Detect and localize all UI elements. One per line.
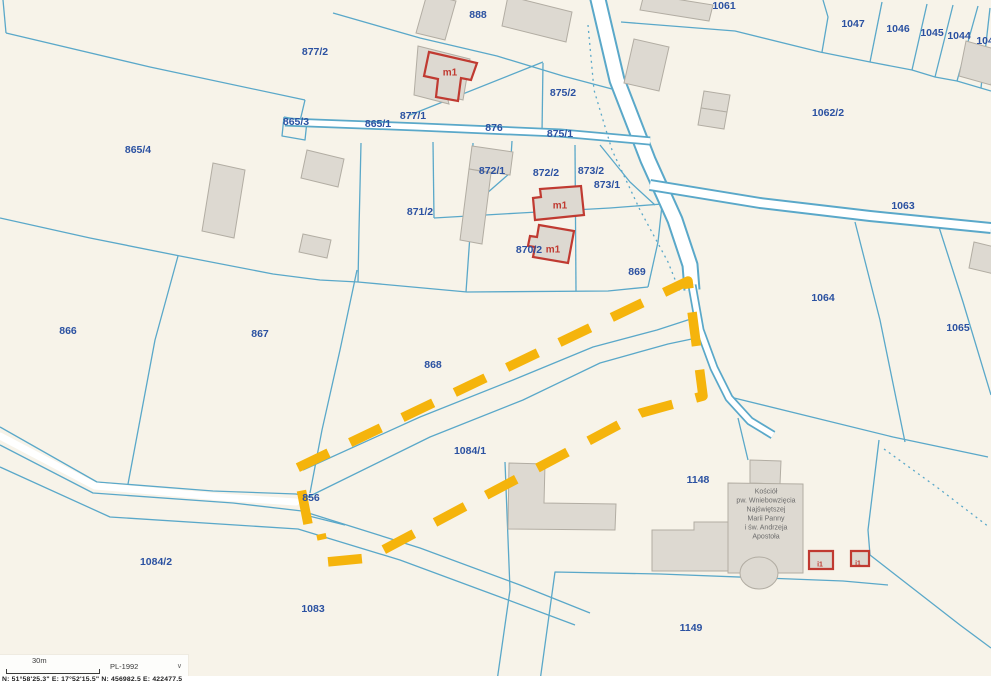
parcel-label: 873/1 xyxy=(594,179,620,191)
parcel-label: 868 xyxy=(424,359,442,371)
church-name-label: Najświętszej xyxy=(747,507,786,514)
parcel-label: 1149 xyxy=(680,622,703,634)
parcel-label: 869 xyxy=(628,266,646,278)
church-name-label: pw. Wniebowzięcia xyxy=(736,498,795,505)
parcel-label: 1064 xyxy=(811,292,835,304)
parcel-label: 1046 xyxy=(886,23,910,35)
parcel-label: 866 xyxy=(59,325,77,337)
parcel-label: 867 xyxy=(251,328,269,340)
parcel-label: 865/1 xyxy=(365,118,391,130)
building-type-label: m1 xyxy=(546,245,561,256)
parcel-label: 1148 xyxy=(687,474,710,486)
parcel-label: 1065 xyxy=(946,322,970,334)
parcel-label: 865/3 xyxy=(283,116,309,128)
parcel-label: 1043 xyxy=(976,35,991,47)
parcel-label: 1047 xyxy=(841,18,865,30)
crs-selector[interactable]: PL-1992 ∨ xyxy=(110,660,182,673)
map-svg: 877/2888875/2865/3865/1877/1876875/1865/… xyxy=(0,0,991,685)
parcel-label: 872/2 xyxy=(533,167,559,179)
building xyxy=(698,108,727,129)
church-name-label: Kościół xyxy=(755,489,778,496)
parcel-label: 875/2 xyxy=(550,87,576,99)
map-viewport[interactable]: 877/2888875/2865/3865/1877/1876875/1865/… xyxy=(0,0,991,685)
coordinates-readout: N: 51°58'25.3" E: 17°52'15.5" N: 456982.… xyxy=(2,676,182,683)
parcel-label: 1084/2 xyxy=(140,556,172,568)
building xyxy=(750,460,781,484)
crs-selector-value: PL-1992 xyxy=(110,662,138,671)
map-background xyxy=(0,0,991,685)
parcel-label: 876 xyxy=(485,122,503,134)
chevron-down-icon: ∨ xyxy=(177,663,182,670)
map-footer-panel: 30m PL-1992 ∨ xyxy=(0,655,188,678)
parcel-label: 1063 xyxy=(891,200,915,212)
parcel-label: 877/1 xyxy=(400,110,426,122)
parcel-label: 873/2 xyxy=(578,165,604,177)
scale-bar xyxy=(6,669,100,674)
parcel-label: 1083 xyxy=(301,603,325,615)
church-apse xyxy=(740,557,778,589)
parcel-label: 1045 xyxy=(920,27,944,39)
church-name-label: Marii Panny xyxy=(748,516,785,523)
building-type-label: m1 xyxy=(443,68,458,79)
scale-bar-label: 30m xyxy=(32,656,47,665)
building-type-label: i1 xyxy=(855,561,861,568)
church-name-label: i św. Andrzeja xyxy=(745,525,788,532)
parcel-label: 1061 xyxy=(712,0,736,12)
parcel-label: 870/2 xyxy=(516,244,542,256)
parcel-label: 856 xyxy=(302,492,320,504)
parcel-label: 877/2 xyxy=(302,46,328,58)
parcel-label: 1044 xyxy=(947,30,971,42)
church-name-label: Apostoła xyxy=(752,534,779,541)
building-type-label: i1 xyxy=(817,562,823,569)
parcel-label: 1084/1 xyxy=(454,445,486,457)
parcel-label: 872/1 xyxy=(479,165,505,177)
parcel-label: 871/2 xyxy=(407,206,433,218)
building-type-label: m1 xyxy=(553,201,568,212)
parcel-label: 865/4 xyxy=(125,144,151,156)
parcel-label: 888 xyxy=(469,9,487,21)
parcel-label: 1062/2 xyxy=(812,107,844,119)
parcel-label: 875/1 xyxy=(547,128,573,140)
